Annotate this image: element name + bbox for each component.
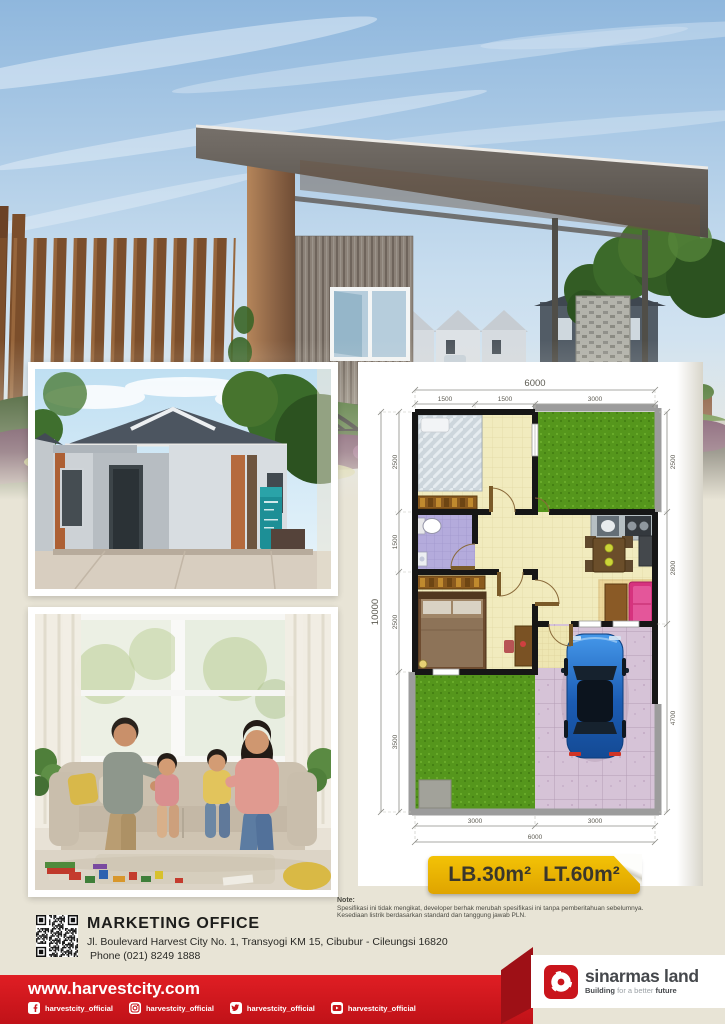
youtube-icon [331, 1002, 343, 1014]
sofa-pink [629, 582, 655, 626]
sinarmas-logo-icon [544, 965, 578, 999]
twitter-icon [230, 1002, 242, 1014]
social-youtube[interactable]: harvestcity_official [331, 1002, 416, 1014]
social-facebook[interactable]: harvestcity_official [28, 1002, 113, 1014]
website-link[interactable]: www.harvestcity.com [28, 979, 200, 999]
dim-left-1: 2500 [392, 454, 399, 469]
dim-left-2: 1500 [392, 534, 399, 549]
dim-left-total: 10000 [370, 599, 381, 625]
dim-top-total: 6000 [524, 378, 545, 389]
garden-back [535, 412, 655, 512]
social-links: harvestcity_official harvestcity_officia… [28, 1002, 416, 1014]
banner-lt: LT.60m² [543, 863, 620, 887]
marketing-office-phone: Phone (021) 8249 1888 [90, 950, 448, 962]
brand-name: sinarmas land [585, 968, 699, 985]
tagline-future: future [655, 986, 676, 995]
floor-plan: 6000 1500 1500 3000 10000 2500 1500 2500… [363, 368, 698, 864]
marketing-office-address: Jl. Boulevard Harvest City No. 1, Transy… [87, 936, 448, 948]
social-twitter[interactable]: harvestcity_official [230, 1002, 315, 1014]
dim-bottom-1: 3000 [468, 818, 483, 825]
note-line-1: Spesifikasi ini tidak mengikat, develope… [337, 905, 715, 913]
qr-code[interactable] [36, 915, 78, 957]
floor-plan-panel: 6000 1500 1500 3000 10000 2500 1500 2500… [358, 362, 703, 886]
wardrobe-1 [417, 496, 477, 509]
garden-pad [419, 780, 451, 808]
daybed [605, 584, 627, 622]
dim-top-2: 1500 [498, 396, 513, 403]
social-instagram[interactable]: harvestcity_official [129, 1002, 214, 1014]
facebook-icon [28, 1002, 40, 1014]
toilet [417, 518, 441, 534]
wardrobe-2 [417, 576, 485, 589]
photo-house-exterior [28, 362, 338, 596]
youtube-handle: harvestcity_official [348, 1004, 416, 1013]
lamp [419, 660, 427, 668]
photo-family-livingroom [28, 607, 338, 897]
bed-2 [418, 592, 486, 670]
dim-right-3: 4700 [670, 710, 677, 725]
bath-sink [417, 552, 427, 566]
marketing-office-title: MARKETING OFFICE [87, 915, 448, 933]
dim-bottom-total: 6000 [528, 834, 543, 841]
child-1 [155, 753, 179, 838]
footer-bar: www.harvestcity.com harvestcity_official… [0, 975, 533, 1024]
marketing-office-block: MARKETING OFFICE Jl. Boulevard Harvest C… [36, 915, 448, 962]
blue-car [561, 634, 629, 762]
twitter-handle: harvestcity_official [247, 1004, 315, 1013]
brand-tagline: Building for a better future [585, 986, 699, 995]
tagline-mid: for a better [617, 986, 653, 995]
tagline-building: Building [585, 986, 615, 995]
facebook-handle: harvestcity_official [45, 1004, 113, 1013]
dim-left-3: 2500 [392, 614, 399, 629]
flyer-page: 6000 1500 1500 3000 10000 2500 1500 2500… [0, 0, 725, 1024]
sinarmas-brand-box: sinarmas land Building for a better futu… [531, 955, 725, 1008]
instagram-handle: harvestcity_official [146, 1004, 214, 1013]
panel-edge-shade [677, 362, 703, 886]
note-title: Note: [337, 897, 715, 905]
dim-bottom-2: 3000 [588, 818, 603, 825]
dim-right-1: 2500 [670, 454, 677, 469]
family-illustration [35, 614, 331, 890]
instagram-icon [129, 1002, 141, 1014]
dim-top-1: 1500 [438, 396, 453, 403]
dim-right-2: 2800 [670, 560, 677, 575]
dim-top-3: 3000 [588, 396, 603, 403]
house-illustration [35, 369, 331, 589]
banner-lb: LB.30m² [448, 863, 531, 887]
dim-left-4: 3500 [392, 734, 399, 749]
area-banner: LB.30m² LT.60m² [428, 856, 640, 894]
